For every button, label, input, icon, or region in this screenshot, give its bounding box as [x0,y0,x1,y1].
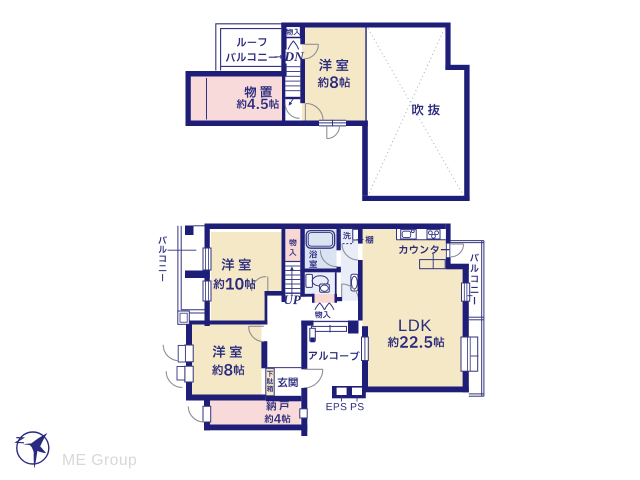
svg-text:ME Group: ME Group [62,452,137,469]
